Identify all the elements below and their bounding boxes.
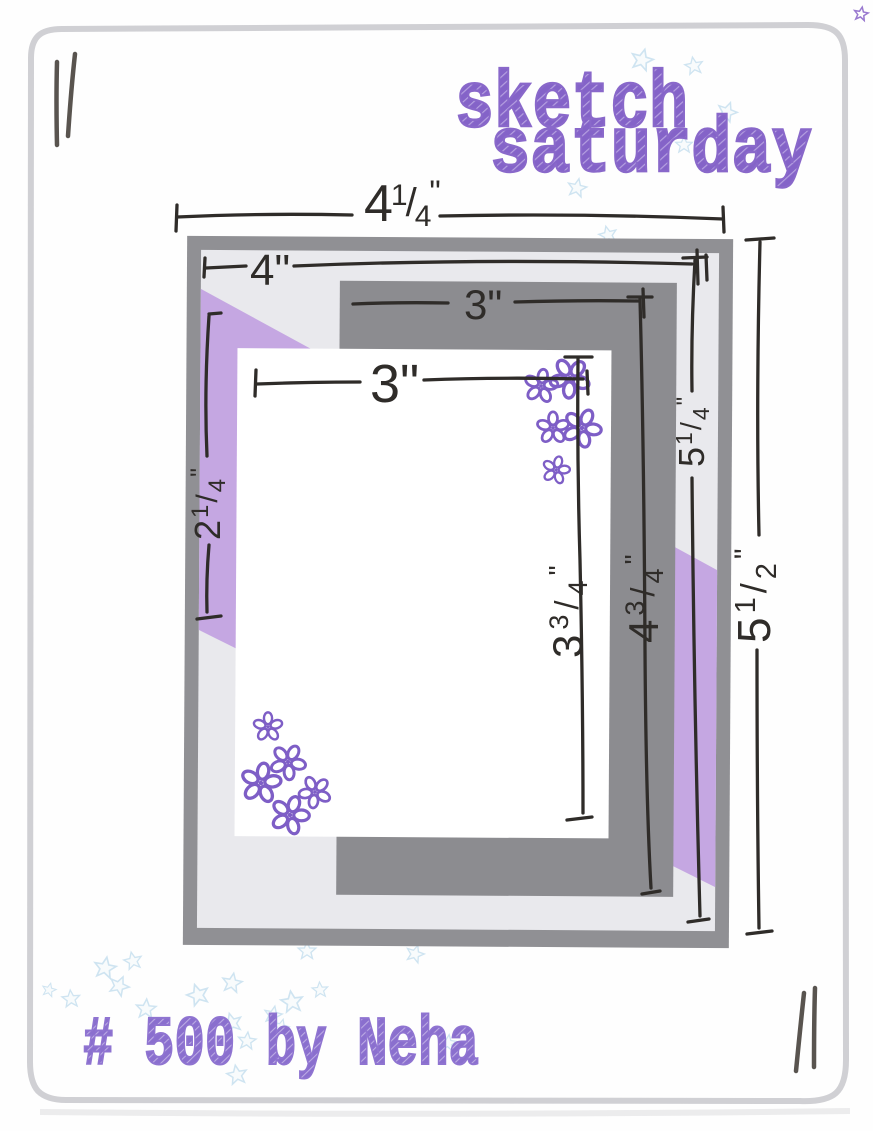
svg-text:saturday: saturday bbox=[490, 105, 812, 195]
svg-text:# 500 by Neha: # 500 by Neha bbox=[83, 1007, 479, 1086]
svg-text:51/4": 51/4" bbox=[671, 395, 714, 467]
svg-text:3": 3" bbox=[464, 281, 502, 328]
svg-text:4": 4" bbox=[250, 246, 290, 295]
svg-text:3": 3" bbox=[370, 354, 419, 414]
